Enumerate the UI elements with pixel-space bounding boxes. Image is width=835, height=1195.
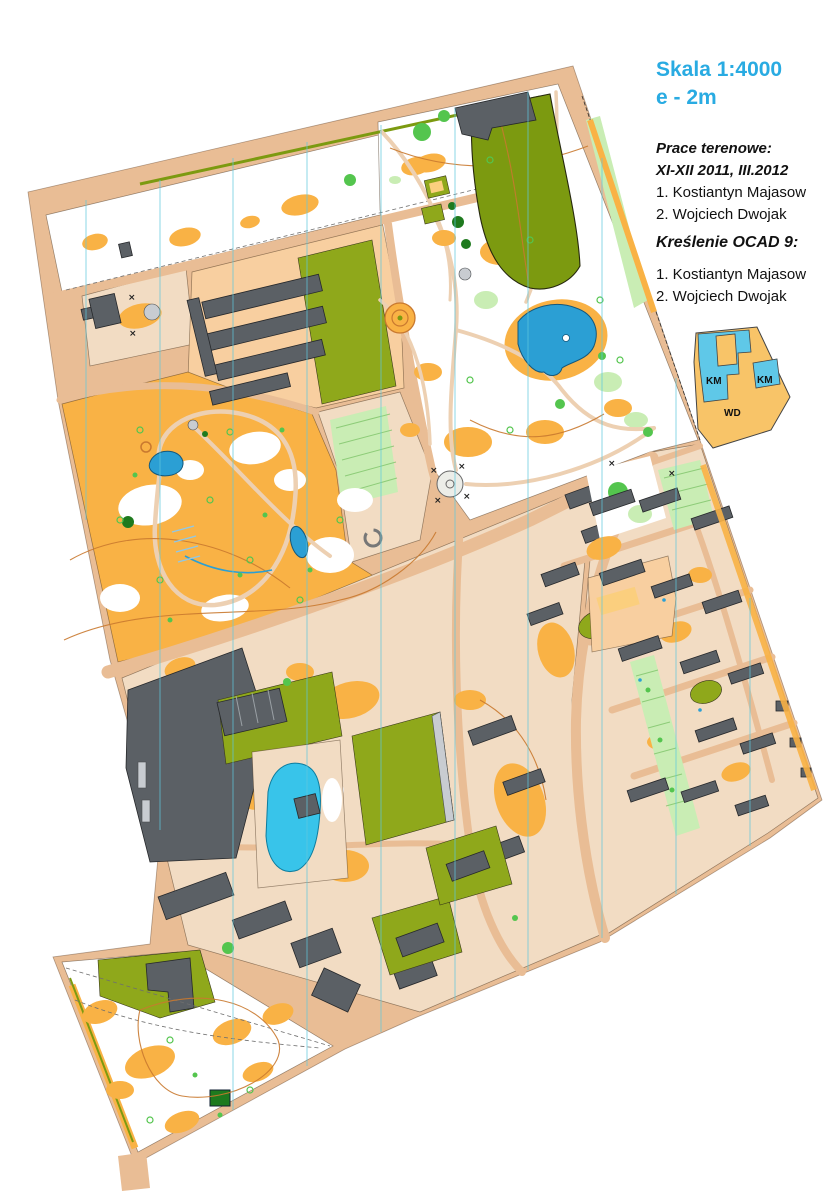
orienteering-map-sheet: × (0, 0, 835, 1195)
ring-garden (385, 303, 415, 333)
fieldwork-heading: Prace terenowe: (656, 138, 832, 160)
svg-text:×: × (434, 496, 442, 506)
drawing-author-2: 2. Wojciech Dwojak (656, 286, 832, 308)
svg-text:×: × (129, 329, 137, 339)
svg-text:×: × (668, 469, 676, 479)
svg-text:×: × (128, 293, 136, 303)
svg-text:×: × (608, 459, 616, 469)
legend-label-km-left: KM (706, 376, 722, 387)
drawing-author-1: 1. Kostiantyn Majasow (656, 264, 832, 286)
pool-area (252, 740, 348, 888)
svg-text:×: × (463, 492, 471, 502)
fieldwork-author-2: 2. Wojciech Dwojak (656, 204, 832, 226)
legend-diagram: KM KM WD (694, 327, 790, 448)
pond-island (563, 335, 570, 342)
drawing-heading: Kreślenie OCAD 9: (656, 232, 832, 254)
contour-interval: e - 2m (656, 84, 832, 112)
legend-label-km-right: KM (757, 375, 773, 386)
road-stub (118, 1152, 150, 1191)
dark-green-plot (210, 1090, 230, 1106)
map-scale: Skala 1:4000 (656, 56, 832, 84)
fieldwork-author-1: 1. Kostiantyn Majasow (656, 182, 832, 204)
legend-label-wd: WD (724, 408, 741, 419)
svg-text:×: × (430, 466, 438, 476)
map-credits: Skala 1:4000 e - 2m Prace terenowe: XI-X… (656, 56, 832, 308)
fieldwork-dates: XI-XII 2011, III.2012 (656, 160, 832, 182)
svg-text:×: × (458, 462, 466, 472)
